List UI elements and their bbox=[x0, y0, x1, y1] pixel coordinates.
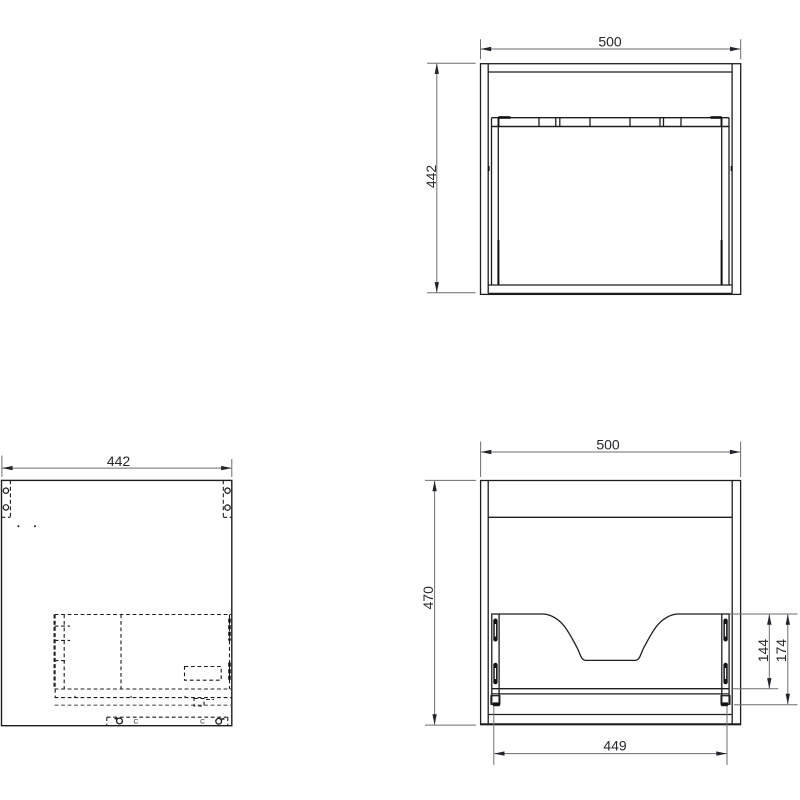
svg-text:500: 500 bbox=[596, 436, 620, 452]
svg-text:500: 500 bbox=[598, 33, 622, 49]
svg-text:449: 449 bbox=[603, 738, 627, 754]
svg-text:C: C bbox=[133, 719, 138, 726]
svg-text:174: 174 bbox=[773, 639, 789, 663]
svg-text:470: 470 bbox=[420, 586, 436, 610]
svg-text:442: 442 bbox=[423, 165, 439, 189]
svg-text:C: C bbox=[200, 719, 205, 726]
svg-text:442: 442 bbox=[107, 453, 131, 469]
svg-text:144: 144 bbox=[755, 639, 771, 663]
